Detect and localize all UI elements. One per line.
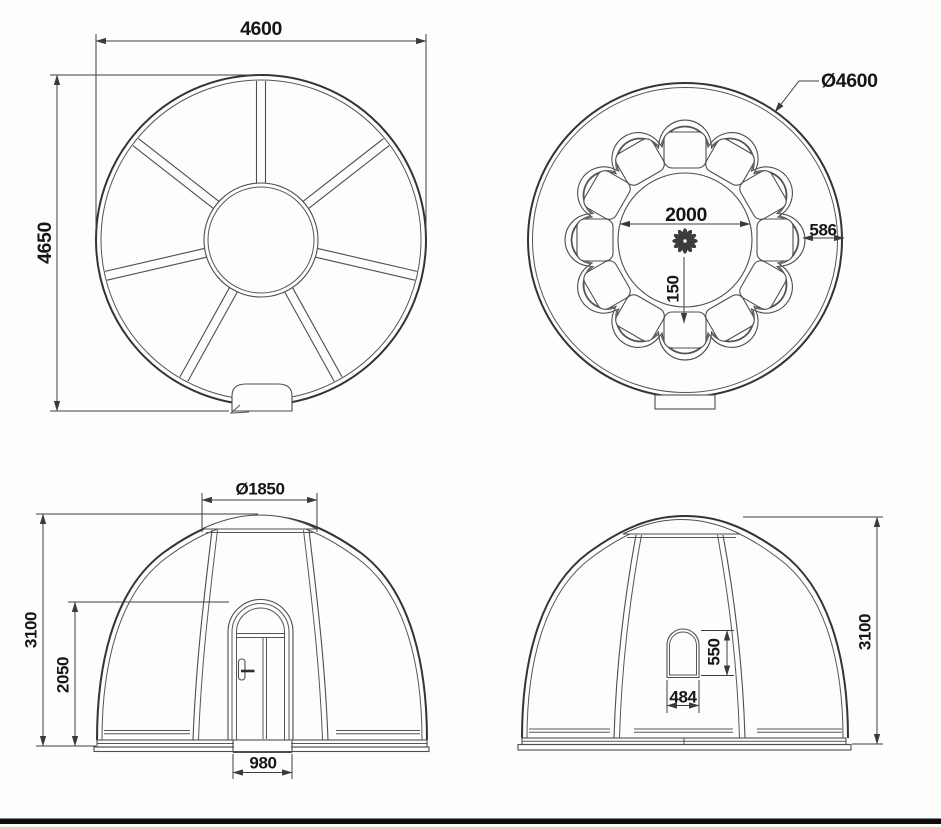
dim-window-height-label: 550 — [705, 638, 724, 665]
entry-door — [228, 600, 293, 741]
skylight-ring — [204, 183, 318, 297]
base-slab — [94, 740, 429, 753]
outer-ring — [96, 75, 426, 405]
door-threshold — [234, 741, 291, 751]
wall-base-trim-side — [529, 729, 842, 732]
door-frame-outer — [228, 600, 293, 741]
technical-drawing-canvas: 4600 4650 — [0, 0, 941, 827]
dim-overall-height-side-label: 3100 — [856, 614, 875, 650]
dim-frame-height-label: 4650 — [34, 222, 56, 264]
dim-window-width-label: 484 — [669, 688, 697, 707]
dim-door-width-label: 980 — [249, 754, 276, 773]
dim-overall-height-front: 3100 — [22, 514, 259, 746]
dim-frame-width: 4600 — [96, 18, 426, 236]
dim-table-diameter-label: 2000 — [665, 204, 707, 226]
entry-canopy-plan — [232, 384, 292, 411]
dim-outer-diameter-leader: Ø4600 — [775, 70, 878, 112]
roof-spokes — [105, 81, 417, 381]
dim-door-height-label: 2050 — [54, 657, 73, 693]
dim-window-height: 550 — [701, 631, 734, 676]
interior-plan-view: 2000 150 586 Ø4600 — [528, 70, 878, 409]
sheet-border-bottom — [0, 819, 941, 825]
dim-seat-to-wall-label: 586 — [809, 221, 836, 240]
dim-overall-height-front-label: 3100 — [22, 612, 41, 648]
doorstep-plan — [655, 395, 715, 409]
dim-frame-width-label: 4600 — [240, 18, 282, 40]
dim-window-width: 484 — [667, 680, 699, 713]
base-slab-side — [518, 738, 851, 750]
drawing-sheet: 4600 4650 — [0, 0, 941, 827]
skylight-cap — [202, 515, 317, 533]
dim-table-diameter: 2000 — [620, 204, 750, 226]
side-window — [667, 629, 699, 678]
outer-ring-inner-line — [101, 80, 421, 400]
dim-skylight-diameter-label: Ø1850 — [235, 480, 284, 499]
skylight-ring-inner-line — [208, 187, 314, 293]
dim-center-to-seat-label: 150 — [664, 275, 683, 302]
center-plant-icon — [672, 228, 697, 253]
dim-door-width: 980 — [233, 754, 292, 780]
dim-outer-diameter-label: Ø4600 — [821, 70, 878, 92]
side-elevation-view: 550 484 3100 — [518, 516, 883, 750]
dim-overall-height-side: 3100 — [743, 517, 883, 744]
frame-plan-view: 4600 4650 — [34, 18, 426, 413]
front-elevation-view: Ø1850 3100 2050 980 — [22, 480, 430, 780]
